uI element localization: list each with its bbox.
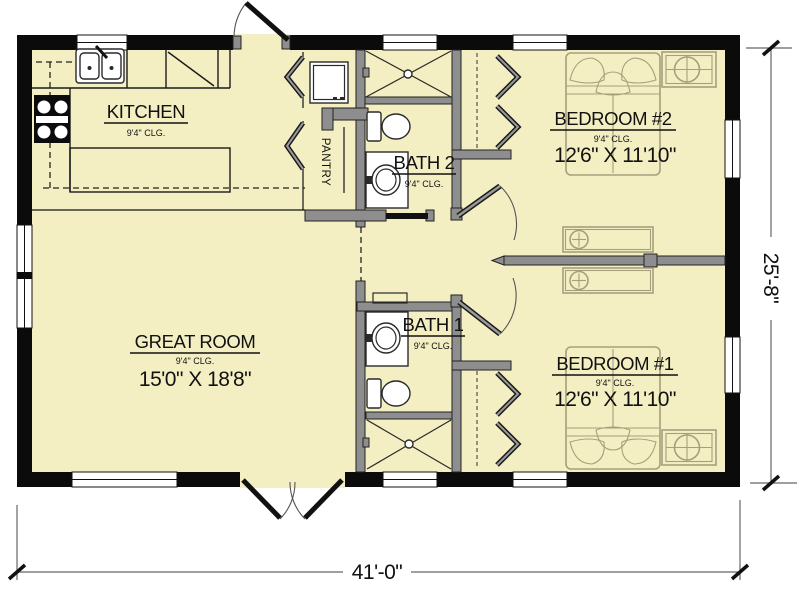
window-bottom-bedroom1 (513, 472, 567, 487)
bedroom2-ceiling-label: 9'4" CLG. (594, 134, 632, 144)
dimension-right: 25'-8" (746, 41, 797, 490)
bedroom1-size-label: 12'6" X 11'10" (554, 388, 676, 411)
pocket-door-bath2 (386, 213, 428, 219)
bedroom1-ceiling-label: 9'4" CLG. (596, 378, 634, 388)
window-right-bedroom2 (725, 120, 740, 178)
window-top-bath2 (383, 35, 437, 50)
range-icon (34, 95, 70, 143)
bedroom1-label: BEDROOM #1 (556, 353, 673, 374)
window-right-bedroom1 (725, 337, 740, 393)
bath1-label: BATH 1 (403, 314, 464, 335)
bath2-ceiling-label: 9'4" CLG. (405, 179, 443, 189)
bath2-label: BATH 2 (394, 152, 455, 173)
great-room-size-label: 15'0" X 18'8" (139, 368, 251, 391)
bedroom-divider-wall (492, 254, 725, 267)
toilet-icon-bath1 (367, 379, 410, 408)
french-door-opening (240, 471, 345, 488)
bedroom2-label: BEDROOM #2 (554, 108, 671, 129)
dimension-bottom: 41'-0" (9, 500, 748, 584)
window-bottom-bath1 (383, 472, 437, 487)
great-room-label: GREAT ROOM (135, 331, 256, 352)
window-bottom-greatroom (72, 472, 177, 487)
toilet-icon-bath2 (367, 112, 410, 141)
window-top-kitchen (77, 35, 127, 50)
bedroom2-size-label: 12'6" X 11'10" (554, 144, 676, 167)
floor-plan-page: PANTRY (0, 0, 800, 595)
kitchen-ceiling-label: 9'4" CLG. (127, 128, 165, 138)
window-left-greatroom (17, 225, 32, 328)
kitchen-sink-icon (76, 46, 124, 83)
overall-depth-dimension: 25'-8" (759, 253, 782, 304)
window-top-bedroom2 (513, 35, 567, 50)
pantry-label: PANTRY (319, 138, 331, 187)
floor-plan-drawing: PANTRY (0, 0, 800, 595)
great-room-ceiling-label: 9'4" CLG. (176, 356, 214, 366)
overall-width-dimension: 41'-0" (352, 561, 403, 584)
washer-icon (310, 62, 348, 103)
kitchen-label: KITCHEN (107, 101, 185, 122)
bath1-ceiling-label: 9'4" CLG. (414, 341, 452, 351)
